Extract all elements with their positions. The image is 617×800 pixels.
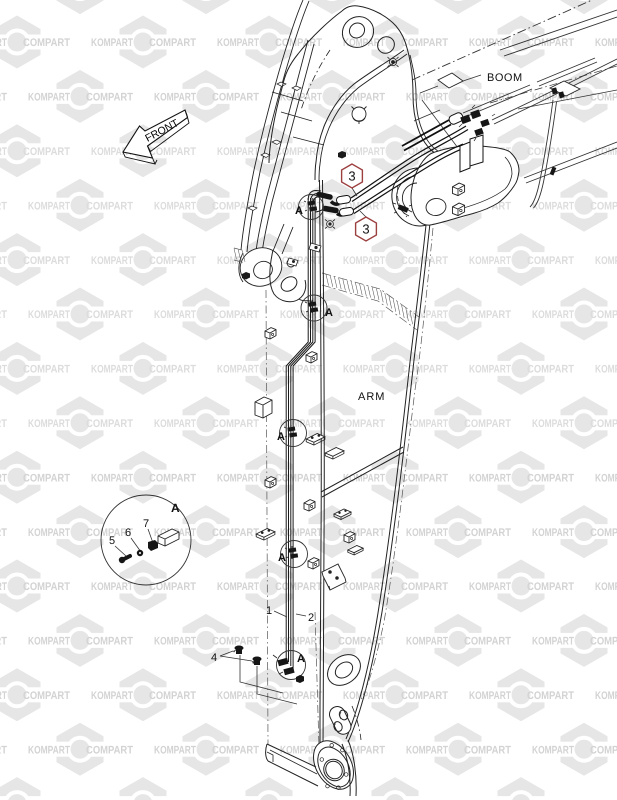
svg-text:KOMPART: KOMPART [595, 37, 617, 49]
svg-text:COMPART: COMPART [212, 636, 259, 648]
svg-text:KOMPART: KOMPART [217, 364, 259, 376]
svg-text:COMPART: COMPART [149, 37, 196, 49]
svg-text:COMPART: COMPART [23, 255, 70, 267]
svg-text:KOMPART: KOMPART [532, 418, 574, 430]
svg-text:COMPART: COMPART [212, 527, 259, 539]
svg-text:KOMPART: KOMPART [28, 527, 70, 539]
svg-text:KOMPART: KOMPART [595, 364, 617, 376]
svg-text:COMPART: COMPART [275, 37, 322, 49]
svg-text:2: 2 [308, 612, 314, 624]
svg-text:COMPART: COMPART [464, 744, 511, 756]
svg-text:COMPART: COMPART [149, 364, 196, 376]
svg-text:KOMPART: KOMPART [532, 527, 574, 539]
svg-text:COMPART: COMPART [149, 690, 196, 702]
svg-text:1: 1 [266, 605, 272, 617]
svg-text:KOMPART: KOMPART [406, 636, 448, 648]
svg-text:COMPART: COMPART [23, 472, 70, 484]
svg-text:KOMPART: KOMPART [0, 37, 7, 49]
svg-text:COMPART: COMPART [401, 364, 448, 376]
svg-text:KOMPART: KOMPART [217, 37, 259, 49]
svg-text:COMPART: COMPART [401, 255, 448, 267]
svg-text:KOMPART: KOMPART [0, 364, 7, 376]
svg-text:KOMPART: KOMPART [343, 37, 385, 49]
svg-text:COMPART: COMPART [275, 364, 322, 376]
svg-text:COMPART: COMPART [590, 636, 617, 648]
svg-text:COMPART: COMPART [590, 309, 617, 321]
svg-text:6: 6 [125, 527, 131, 539]
svg-text:KOMPART: KOMPART [154, 636, 196, 648]
svg-text:KOMPART: KOMPART [469, 364, 511, 376]
svg-text:KOMPART: KOMPART [343, 364, 385, 376]
svg-text:COMPART: COMPART [590, 744, 617, 756]
svg-text:KOMPART: KOMPART [217, 146, 259, 158]
svg-text:KOMPART: KOMPART [91, 364, 133, 376]
svg-text:KOMPART: KOMPART [217, 690, 259, 702]
svg-text:COMPART: COMPART [590, 92, 617, 104]
svg-text:COMPART: COMPART [86, 744, 133, 756]
svg-text:ARM: ARM [358, 391, 385, 403]
svg-text:KOMPART: KOMPART [595, 690, 617, 702]
svg-text:COMPART: COMPART [464, 92, 511, 104]
svg-text:KOMPART: KOMPART [154, 418, 196, 430]
svg-text:KOMPART: KOMPART [343, 255, 385, 267]
svg-text:COMPART: COMPART [0, 200, 7, 212]
svg-text:KOMPART: KOMPART [28, 92, 70, 104]
svg-text:COMPART: COMPART [149, 581, 196, 593]
svg-text:COMPART: COMPART [23, 364, 70, 376]
svg-text:KOMPART: KOMPART [406, 527, 448, 539]
svg-text:3: 3 [362, 222, 369, 237]
svg-text:KOMPART: KOMPART [91, 37, 133, 49]
svg-text:5: 5 [109, 535, 115, 547]
svg-text:KOMPART: KOMPART [532, 200, 574, 212]
svg-text:KOMPART: KOMPART [154, 92, 196, 104]
svg-text:KOMPART: KOMPART [469, 690, 511, 702]
svg-text:A: A [297, 653, 305, 665]
svg-text:KOMPART: KOMPART [28, 636, 70, 648]
svg-text:COMPART: COMPART [86, 92, 133, 104]
svg-text:COMPART: COMPART [0, 744, 7, 756]
svg-text:KOMPART: KOMPART [154, 744, 196, 756]
svg-text:KOMPART: KOMPART [0, 690, 7, 702]
svg-text:COMPART: COMPART [275, 146, 322, 158]
svg-text:KOMPART: KOMPART [0, 255, 7, 267]
svg-text:COMPART: COMPART [590, 418, 617, 430]
svg-text:KOMPART: KOMPART [343, 146, 385, 158]
svg-text:COMPART: COMPART [527, 364, 574, 376]
svg-text:COMPART: COMPART [401, 37, 448, 49]
svg-text:COMPART: COMPART [401, 581, 448, 593]
svg-text:KOMPART: KOMPART [0, 472, 7, 484]
svg-text:COMPART: COMPART [212, 418, 259, 430]
svg-text:KOMPART: KOMPART [91, 472, 133, 484]
svg-text:COMPART: COMPART [464, 418, 511, 430]
svg-text:COMPART: COMPART [401, 472, 448, 484]
svg-text:COMPART: COMPART [212, 744, 259, 756]
svg-text:KOMPART: KOMPART [91, 581, 133, 593]
svg-text:COMPART: COMPART [275, 472, 322, 484]
svg-text:COMPART: COMPART [527, 581, 574, 593]
svg-text:COMPART: COMPART [86, 200, 133, 212]
svg-text:COMPART: COMPART [0, 636, 7, 648]
svg-text:KOMPART: KOMPART [91, 690, 133, 702]
svg-text:COMPART: COMPART [590, 527, 617, 539]
svg-text:COMPART: COMPART [23, 581, 70, 593]
svg-text:COMPART: COMPART [464, 636, 511, 648]
svg-text:KOMPART: KOMPART [406, 92, 448, 104]
svg-text:COMPART: COMPART [212, 309, 259, 321]
svg-text:KOMPART: KOMPART [28, 309, 70, 321]
svg-text:A: A [295, 205, 303, 217]
svg-text:COMPART: COMPART [275, 581, 322, 593]
svg-text:KOMPART: KOMPART [406, 744, 448, 756]
svg-text:KOMPART: KOMPART [532, 744, 574, 756]
svg-text:A: A [325, 307, 333, 319]
svg-text:KOMPART: KOMPART [28, 744, 70, 756]
svg-text:COMPART: COMPART [527, 37, 574, 49]
svg-text:KOMPART: KOMPART [469, 472, 511, 484]
svg-text:COMPART: COMPART [23, 690, 70, 702]
svg-text:KOMPART: KOMPART [595, 255, 617, 267]
svg-text:KOMPART: KOMPART [595, 581, 617, 593]
svg-text:3: 3 [348, 169, 355, 184]
svg-text:COMPART: COMPART [0, 418, 7, 430]
svg-text:KOMPART: KOMPART [217, 472, 259, 484]
svg-text:KOMPART: KOMPART [217, 581, 259, 593]
svg-text:COMPART: COMPART [149, 472, 196, 484]
svg-text:COMPART: COMPART [527, 472, 574, 484]
svg-text:KOMPART: KOMPART [0, 146, 7, 158]
svg-text:COMPART: COMPART [338, 418, 385, 430]
svg-text:KOMPART: KOMPART [469, 255, 511, 267]
svg-text:COMPART: COMPART [338, 636, 385, 648]
svg-text:COMPART: COMPART [23, 146, 70, 158]
svg-text:KOMPART: KOMPART [154, 309, 196, 321]
svg-text:KOMPART: KOMPART [91, 255, 133, 267]
svg-text:KOMPART: KOMPART [595, 472, 617, 484]
svg-text:COMPART: COMPART [464, 527, 511, 539]
svg-text:KOMPART: KOMPART [0, 581, 7, 593]
svg-text:COMPART: COMPART [0, 527, 7, 539]
svg-text:COMPART: COMPART [527, 255, 574, 267]
svg-text:COMPART: COMPART [86, 636, 133, 648]
svg-text:COMPART: COMPART [527, 690, 574, 702]
svg-text:KOMPART: KOMPART [28, 418, 70, 430]
svg-text:KOMPART: KOMPART [532, 636, 574, 648]
svg-text:COMPART: COMPART [212, 92, 259, 104]
svg-text:COMPART: COMPART [86, 309, 133, 321]
svg-text:COMPART: COMPART [149, 255, 196, 267]
svg-text:COMPART: COMPART [401, 690, 448, 702]
svg-text:A: A [277, 431, 285, 443]
svg-text:A: A [278, 552, 286, 564]
svg-text:COMPART: COMPART [0, 92, 7, 104]
svg-text:COMPART: COMPART [527, 146, 574, 158]
svg-text:COMPART: COMPART [0, 309, 7, 321]
svg-text:COMPART: COMPART [23, 37, 70, 49]
svg-text:COMPART: COMPART [338, 309, 385, 321]
svg-text:KOMPART: KOMPART [469, 581, 511, 593]
svg-text:KOMPART: KOMPART [343, 581, 385, 593]
svg-text:KOMPART: KOMPART [532, 309, 574, 321]
svg-text:KOMPART: KOMPART [154, 200, 196, 212]
svg-text:KOMPART: KOMPART [406, 309, 448, 321]
svg-text:A: A [171, 501, 180, 515]
svg-text:7: 7 [143, 518, 149, 530]
svg-text:COMPART: COMPART [464, 309, 511, 321]
svg-text:COMPART: COMPART [590, 200, 617, 212]
svg-text:COMPART: COMPART [86, 418, 133, 430]
svg-text:BOOM: BOOM [487, 72, 523, 84]
svg-text:4: 4 [211, 652, 217, 664]
svg-text:KOMPART: KOMPART [28, 200, 70, 212]
svg-text:KOMPART: KOMPART [406, 418, 448, 430]
